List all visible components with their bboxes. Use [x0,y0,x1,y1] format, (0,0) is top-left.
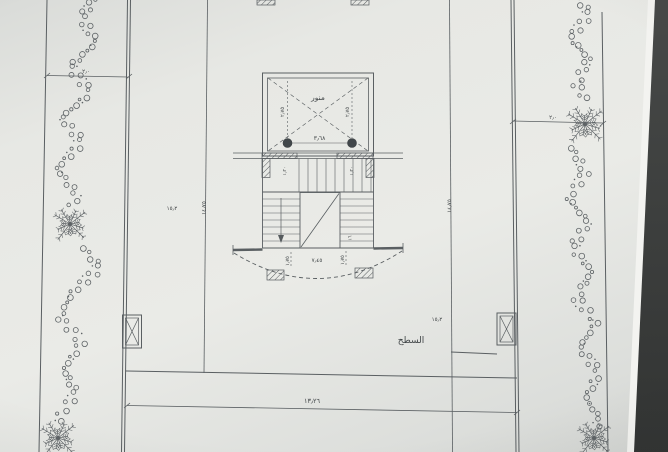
dim-stair-flight-left: ١٫٢٠ [282,167,288,176]
stair-treads-right [340,199,374,241]
balcony-column [267,270,284,280]
landscaping-strip-left [40,0,100,452]
stair-direction-arrow [278,198,284,243]
level-annotation-right: ١٥٫٢ [432,317,443,323]
vertical-dimension-lines [204,0,453,452]
palm-tree-icon [53,208,87,242]
balcony-arc [234,251,402,279]
roof-drain-icon [348,139,357,148]
palm-tree-icon [566,106,604,143]
room-label-roof: السطح [398,336,424,346]
top-edge-columns [257,0,369,5]
dim-lightwell-depth-right: ٢٫٧٥ [345,107,351,117]
lightwell-block: منور ٣٫٦٨ ٢٫٧٥ ٢٫٧٥ [263,73,374,156]
balcony: ١٫٧٥ ١٫٧٥ ٧٫٤٥ [233,243,403,280]
dim-balcony-side-left: ١٫٧٥ [285,256,291,266]
dim-lightwell-depth-left: ٢٫٧٥ [280,107,286,117]
dim-height-right: ١٤٫٧٥ [447,199,453,213]
dim-balcony-total: ٧٫٤٥ [312,258,323,264]
roof-plan-drawing: ١٤٫٧٥ ١٤٫٧٥ ١٥٫٢ ١٥٫٢ ١٣٫٢٦ ٢٫٠ ٢٫٠ [0,0,668,452]
stair-top-wall [233,153,403,178]
bottom-dimension-line [124,403,520,415]
dim-balcony-side-right: ١٫٧٥ [340,255,346,265]
photo-of-roof-plan: ١٤٫٧٥ ١٤٫٧٥ ١٥٫٢ ١٥٫٢ ١٣٫٢٦ ٢٫٠ ٢٫٠ [0,0,668,452]
dim-height-left: ١٤٫٧٥ [202,201,208,215]
edge-column-right [497,313,516,345]
dim-width-bottom: ١٣٫٢٦ [304,397,321,405]
dim-lightwell-width: ٣٫٦٨ [314,135,326,142]
dim-setback-right: ٢٫٠ [549,115,557,121]
dim-stair-flight-right: ١٫٢٠ [349,167,355,176]
lightwell-dim-lines [288,81,353,143]
roof-drain-icon [283,139,292,148]
landscaping-strip-right [565,0,611,452]
balcony-column [355,268,373,278]
edge-column-left [123,315,142,348]
stair-riser-count: ١٦ [349,235,354,240]
palm-tree-icon [40,421,76,452]
lightwell-label: منور [310,93,325,102]
level-annotation-left: ١٥٫٢ [167,206,178,212]
palm-tree-icon [577,422,611,452]
building-outline [122,0,520,452]
stair-treads-top [299,159,371,193]
staircase: ١٫٢٠ ١٫٢٠ ١٦ [263,158,374,248]
